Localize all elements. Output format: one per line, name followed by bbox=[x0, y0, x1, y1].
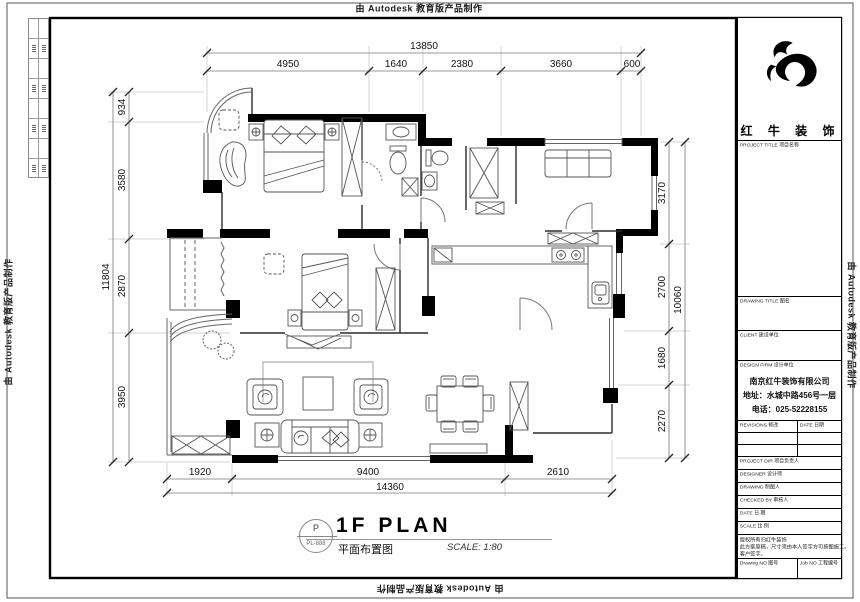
drawing-title-row: DRAWING TITLE 图名 bbox=[738, 296, 841, 330]
kitchen-sink bbox=[592, 282, 609, 304]
project-title-row: PROJECT TITLE 项目名称 bbox=[738, 140, 841, 296]
dim-label: 2700 bbox=[657, 275, 668, 298]
dim-left: 934 3580 2870 3950 11804 bbox=[101, 88, 133, 466]
floor-plan-canvas: 4950 1640 2380 3660 600 13850 1920 9 bbox=[0, 0, 860, 602]
checked-by-label: CHECKED BY 审核人 bbox=[738, 496, 802, 503]
dim-label: 1680 bbox=[657, 346, 668, 369]
dim-right: 3170 2700 1680 2270 10060 bbox=[657, 138, 689, 462]
revision-empty-row bbox=[738, 444, 841, 456]
plan-subtitle-cn: 平面布置图 bbox=[338, 541, 393, 557]
dining-chair bbox=[463, 421, 478, 432]
nightstand bbox=[349, 310, 362, 326]
dining-table bbox=[437, 386, 483, 422]
dim-label: 3660 bbox=[550, 59, 573, 70]
client-row: CLIENT 建设单位 bbox=[738, 330, 841, 360]
dim-top: 4950 1640 2380 3660 600 13850 bbox=[203, 41, 645, 75]
dim-label: 4950 bbox=[277, 59, 300, 70]
company-address: 地址：水城中路456号一层 bbox=[738, 389, 841, 403]
date-label: DATE 日 期 bbox=[738, 509, 802, 516]
nightstand bbox=[325, 124, 339, 140]
dim-label: 14360 bbox=[376, 482, 404, 493]
revision-grid bbox=[28, 18, 49, 178]
revisions-label: REVISIONS 修改 bbox=[738, 421, 774, 428]
plant bbox=[203, 331, 221, 349]
armchair bbox=[354, 379, 388, 415]
balcony-cabinet bbox=[172, 436, 230, 454]
checked-by-row: CHECKED BY 审核人 bbox=[738, 495, 841, 508]
designer-label: DESIGNER 设计师 bbox=[738, 470, 802, 477]
dining-chair bbox=[441, 376, 456, 387]
dim-label: 3580 bbox=[117, 168, 128, 191]
revision-empty-row bbox=[738, 432, 841, 444]
plan-scale: SCALE: 1:80 bbox=[447, 542, 502, 553]
plant bbox=[218, 343, 234, 359]
design-firm-label: DESIGN FIRM 设计单位 bbox=[738, 361, 802, 368]
tall-cabinet bbox=[510, 382, 528, 430]
logo-cell: 红 牛 装 饰 bbox=[738, 18, 843, 140]
dim-label: 3170 bbox=[657, 181, 668, 204]
sofa bbox=[281, 420, 359, 453]
dim-label: 600 bbox=[624, 59, 641, 70]
dim-label: 2380 bbox=[451, 59, 474, 70]
job-no-label: Job NO 工程编号 bbox=[798, 559, 838, 566]
drawing-number-bubble: P PL-888 bbox=[299, 519, 333, 553]
dim-label: 13850 bbox=[410, 41, 438, 52]
revisions-date-label: DATE 日期 bbox=[798, 421, 825, 428]
revisions-header-row: REVISIONS 修改 DATE 日期 bbox=[738, 420, 841, 432]
furniture-master-bedroom bbox=[219, 110, 362, 196]
date-row: DATE 日 期 bbox=[738, 508, 841, 521]
wardrobe bbox=[342, 118, 362, 196]
drawing-by-label: DRAWING 制图人 bbox=[738, 483, 802, 490]
drawing-by-row: DRAWING 制图人 bbox=[738, 482, 841, 495]
project-title-label: PROJECT TITLE 项目名称 bbox=[738, 141, 802, 148]
furniture-bath2 bbox=[422, 150, 448, 190]
title-underline bbox=[306, 539, 552, 540]
coffee-table bbox=[303, 377, 333, 410]
drawing-no-row: Drawing NO 图号 Job NO 工程编号 bbox=[738, 558, 841, 578]
nightstand bbox=[249, 124, 263, 140]
designer-row: DESIGNER 设计师 bbox=[738, 469, 841, 482]
project-dir-row: PROJECT DIR 项目负责人 bbox=[738, 456, 841, 469]
design-firm-row: DESIGN FIRM 设计单位 南京红牛装饰有限公司 地址：水城中路456号一… bbox=[738, 360, 841, 420]
tv bbox=[295, 338, 341, 349]
sideboard bbox=[430, 444, 487, 453]
furniture-balcony bbox=[172, 331, 234, 454]
note-line2: 此方案原稿，尺寸须由本人签字方可按图施工。 bbox=[740, 543, 798, 550]
stove bbox=[552, 248, 584, 262]
furniture-closet bbox=[470, 148, 504, 214]
title-block: 红 牛 装 饰 PROJECT TITLE 项目名称 DRAWING TITLE… bbox=[736, 18, 841, 578]
dim-label: 2610 bbox=[547, 467, 570, 478]
company-name: 南京红牛装饰有限公司 bbox=[738, 375, 841, 389]
red-bull-logo-icon bbox=[762, 36, 820, 106]
bubble-code: PL-888 bbox=[302, 541, 329, 547]
wardrobe bbox=[376, 268, 395, 330]
dim-label: 2270 bbox=[657, 409, 668, 432]
plan-title: 1F PLAN bbox=[336, 514, 452, 538]
furniture-master-bath bbox=[386, 124, 418, 196]
note-line3: 客户签字。 bbox=[740, 550, 798, 557]
nightstand bbox=[288, 310, 301, 326]
chaise-chair bbox=[220, 142, 246, 186]
dining-chair bbox=[463, 376, 478, 387]
dim-label: 934 bbox=[117, 98, 128, 115]
dim-label: 10060 bbox=[673, 286, 684, 314]
note-line1: 版权所有归红牛装饰 bbox=[740, 536, 798, 543]
brand-name: 红 牛 装 饰 bbox=[738, 122, 843, 139]
company-phone: 电话：025-52228155 bbox=[738, 403, 841, 417]
furniture-kitchen bbox=[432, 246, 612, 308]
furniture-living-room bbox=[247, 336, 388, 453]
dim-bottom: 1920 9400 2610 14360 bbox=[163, 467, 616, 497]
scale-label: SCALE 比 例 bbox=[738, 522, 802, 529]
client-label: CLIENT 建设单位 bbox=[738, 331, 802, 338]
scale-row: SCALE 比 例 bbox=[738, 521, 841, 534]
drawing-no-label: Drawing NO 图号 bbox=[738, 559, 774, 566]
furniture-bedroom2 bbox=[545, 150, 611, 244]
dining-chair bbox=[483, 395, 494, 411]
dim-label: 3950 bbox=[117, 385, 128, 408]
dining-chair bbox=[426, 395, 437, 411]
side-table bbox=[358, 423, 382, 447]
drawing-sheet: 由 Autodesk 教育版产品制作 由 Autodesk 教育版产品制作 由 … bbox=[0, 0, 860, 602]
copyright-note: 版权所有归红牛装饰 此方案原稿，尺寸须由本人签字方可按图施工。 客户签字。 bbox=[738, 534, 841, 558]
dim-label: 1920 bbox=[189, 467, 212, 478]
side-table bbox=[255, 423, 279, 447]
furniture-bedroom3 bbox=[264, 254, 395, 345]
drawing-title-label: DRAWING TITLE 图名 bbox=[738, 297, 802, 304]
armchair bbox=[247, 379, 283, 415]
dining-chair bbox=[441, 421, 456, 432]
dim-label: 1640 bbox=[385, 59, 408, 70]
project-dir-label: PROJECT DIR 项目负责人 bbox=[738, 457, 802, 464]
bubble-letter: P bbox=[300, 523, 332, 533]
dim-label: 2870 bbox=[117, 274, 128, 297]
dim-label: 9400 bbox=[357, 467, 380, 478]
dim-label: 11804 bbox=[101, 263, 112, 291]
